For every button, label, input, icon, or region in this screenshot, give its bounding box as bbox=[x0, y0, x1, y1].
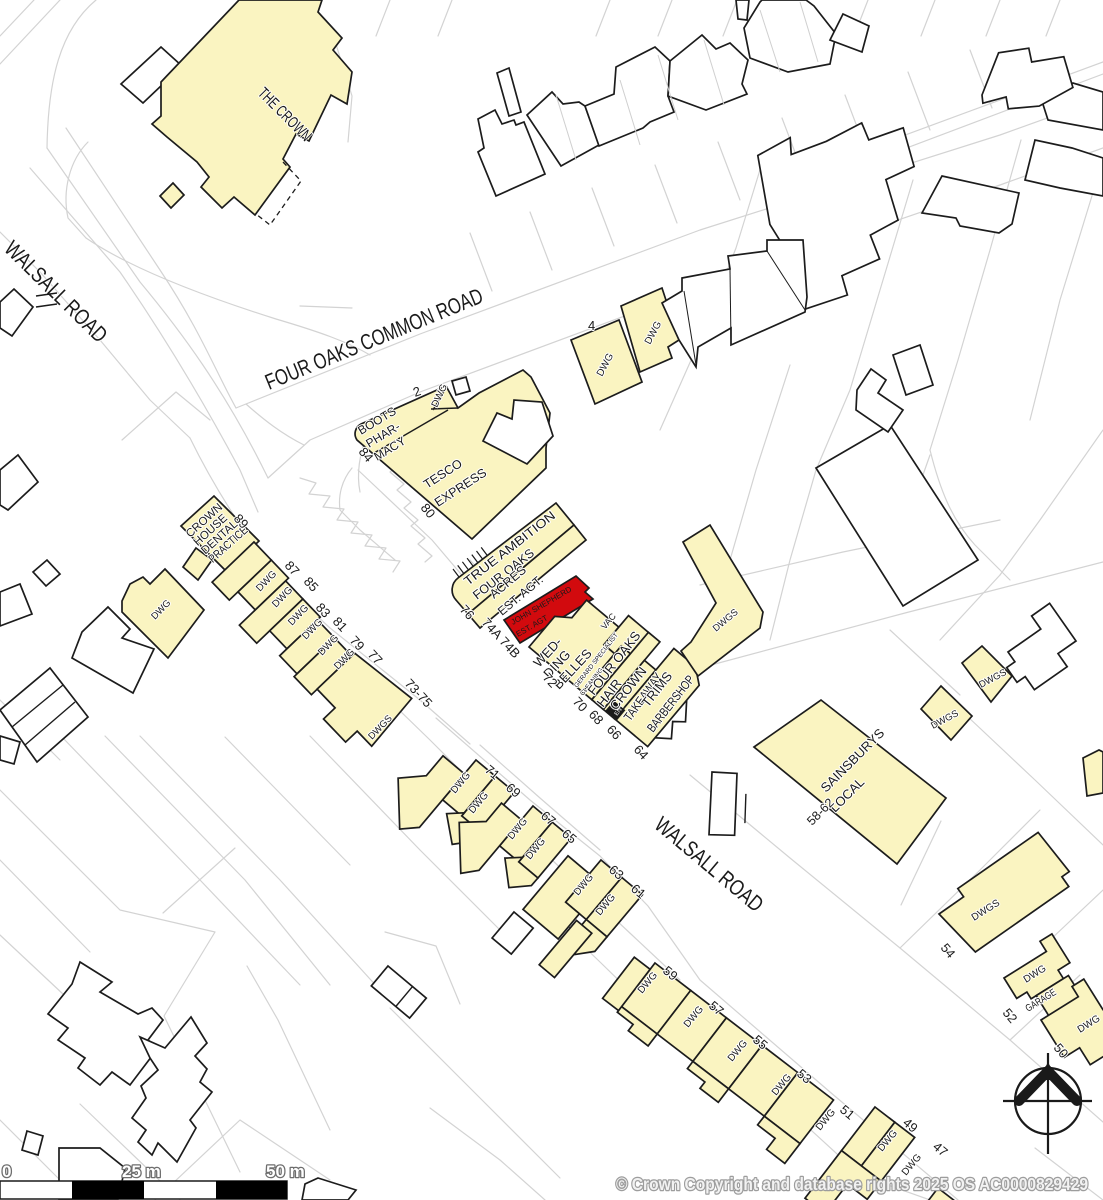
svg-text:4: 4 bbox=[588, 318, 595, 333]
svg-text:0: 0 bbox=[2, 1162, 11, 1181]
svg-text:© Crown Copyright and database: © Crown Copyright and database rights 20… bbox=[616, 1174, 1088, 1194]
svg-text:50 m: 50 m bbox=[266, 1162, 305, 1181]
svg-text:25 m: 25 m bbox=[122, 1162, 161, 1181]
